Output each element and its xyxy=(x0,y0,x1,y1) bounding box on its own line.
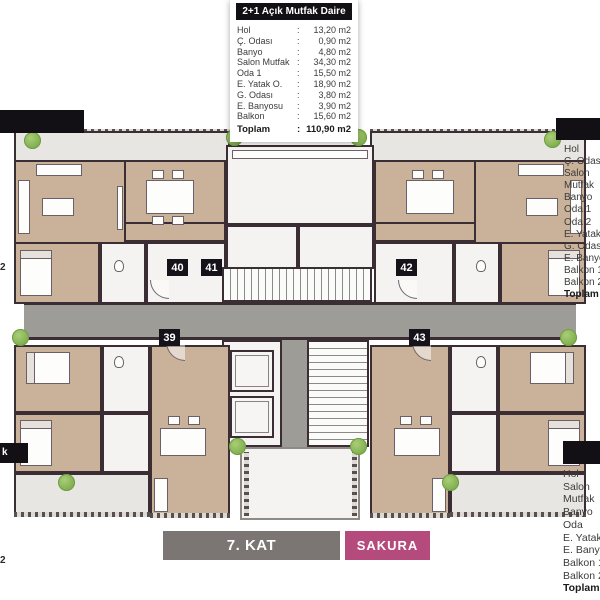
room xyxy=(298,225,374,269)
furniture xyxy=(526,198,558,216)
colon: : xyxy=(297,101,305,112)
legend-header-bar-clipped xyxy=(0,110,84,133)
tree-icon xyxy=(560,329,577,346)
room xyxy=(226,225,298,269)
legend-row: Balkon : 15,60 m2 xyxy=(230,111,358,122)
total-label: Toplam xyxy=(563,582,600,595)
room-label: E. Banyosu xyxy=(563,544,600,557)
legend-title: 2+1 Açık Mutfak Daire xyxy=(236,3,352,20)
colon: : xyxy=(297,36,305,47)
legend-row: G. Odası : 3,80 m2 xyxy=(230,90,358,101)
furniture xyxy=(476,356,486,368)
room xyxy=(450,345,498,413)
project-label: SAKURA xyxy=(345,531,430,560)
room-label: E. Banyosu xyxy=(564,253,600,265)
tree-icon xyxy=(442,474,459,491)
unit-legend-right-bottom: Hol Salon Mutfak Banyo Oda E. Yatak O. E… xyxy=(563,441,600,595)
furniture xyxy=(146,180,194,214)
tree-icon xyxy=(58,474,75,491)
room-label: Banyo xyxy=(563,506,600,519)
legend-total-row: Toplam : 110,90 m2 xyxy=(230,125,358,136)
room-area: 0,90 m2 xyxy=(305,36,351,47)
room-label: G. Odası xyxy=(564,241,600,253)
furniture xyxy=(114,260,124,272)
unit-badge-43: 43 xyxy=(409,329,430,346)
room-label: Mutfak xyxy=(563,493,600,506)
furniture xyxy=(420,416,432,425)
furniture xyxy=(412,170,424,179)
colon: : xyxy=(297,57,305,68)
furniture xyxy=(114,356,124,368)
furniture xyxy=(476,260,486,272)
room-area: 34,30 m2 xyxy=(305,57,351,68)
corridor xyxy=(282,340,307,447)
room-label: Mutfak xyxy=(564,180,600,192)
legend-row: Hol : 13,20 m2 xyxy=(230,25,358,36)
unit-legend-top: 2+1 Açık Mutfak Daire Hol : 13,20 m2 Ç. … xyxy=(230,0,358,142)
unit-badge-42: 42 xyxy=(396,259,417,276)
legend-row: Salon Mutfak : 34,30 m2 xyxy=(230,57,358,68)
colon: : xyxy=(297,79,305,90)
balcony-rail xyxy=(370,513,450,518)
colon: : xyxy=(297,25,305,36)
furniture xyxy=(160,428,206,456)
legend-header-bar xyxy=(563,441,600,464)
tree-icon xyxy=(229,438,246,455)
staircase xyxy=(307,340,369,447)
unit-badge-40: 40 xyxy=(167,259,188,276)
room-area: 3,80 m2 xyxy=(305,90,351,101)
furniture xyxy=(565,352,574,384)
total-label: Toplam xyxy=(564,289,600,301)
kitchen-counter xyxy=(232,150,368,159)
room-label: E. Banyosu xyxy=(237,101,283,112)
room-label: Salon xyxy=(564,168,600,180)
tree-icon xyxy=(12,329,29,346)
furniture xyxy=(518,164,564,176)
furniture xyxy=(188,416,200,425)
room-label: Balkon 2 xyxy=(564,277,600,289)
legend-row: E. Yatak O. : 18,90 m2 xyxy=(230,79,358,90)
room-label: Oda 1 xyxy=(237,68,262,79)
room-area: 15,60 m2 xyxy=(305,111,351,122)
room-area: 3,90 m2 xyxy=(305,101,351,112)
legend-row: Banyo : 4,80 m2 xyxy=(230,47,358,58)
room-label: Oda 1 xyxy=(564,204,600,216)
room-label: Hol xyxy=(237,25,251,36)
room-label: Balkon xyxy=(237,111,265,122)
room-label: E. Yatak O. xyxy=(563,532,600,545)
room-label: E. Yatak O. xyxy=(564,229,600,241)
furniture xyxy=(400,416,412,425)
room-label: Banyo xyxy=(237,47,263,58)
legend-row: Oda 1 : 15,50 m2 xyxy=(230,68,358,79)
room xyxy=(124,222,226,242)
colon: : xyxy=(297,125,305,136)
furniture xyxy=(172,216,184,225)
furniture xyxy=(36,164,82,176)
elevator xyxy=(230,350,274,392)
furniture xyxy=(406,180,454,214)
furniture xyxy=(394,428,440,456)
room-area: 18,90 m2 xyxy=(305,79,351,90)
balcony-rail xyxy=(150,513,230,518)
unit-legend-right-top: Hol Ç. Odası Salon Mutfak Banyo Oda 1 Od… xyxy=(564,118,600,301)
furniture xyxy=(154,478,168,512)
room-label: Oda 2 xyxy=(564,217,600,229)
unit-badge-41: 41 xyxy=(201,259,222,276)
legend-row: E. Banyosu : 3,90 m2 xyxy=(230,101,358,112)
colon: : xyxy=(297,68,305,79)
balcony-rail xyxy=(244,452,249,516)
room-label: Balkon 1 xyxy=(564,265,600,277)
room xyxy=(454,242,500,304)
floor-plan: 39 40 41 42 43 2+1 Açık Mutfak Daire Hol… xyxy=(0,0,600,600)
room-label: Ç. Odası xyxy=(237,36,273,47)
colon: : xyxy=(297,90,305,101)
room-label: Salon xyxy=(563,481,600,494)
room-label: E. Yatak O. xyxy=(237,79,282,90)
room-label: Ç. Odası xyxy=(564,156,600,168)
tree-icon xyxy=(24,132,41,149)
room-label: Oda xyxy=(563,519,600,532)
balcony-rail xyxy=(14,512,150,517)
colon: : xyxy=(297,47,305,58)
m2-text-fragment: 2 xyxy=(0,262,6,273)
furniture xyxy=(20,420,52,429)
furniture xyxy=(168,416,180,425)
furniture xyxy=(26,352,35,384)
balcony-rail xyxy=(352,452,357,516)
room-label: Balkon 1 xyxy=(563,557,600,570)
furniture xyxy=(172,170,184,179)
furniture xyxy=(20,250,52,259)
room-area: 13,20 m2 xyxy=(305,25,351,36)
room xyxy=(102,345,150,413)
furniture xyxy=(432,170,444,179)
furniture xyxy=(152,170,164,179)
floor-label: 7. KAT xyxy=(163,531,340,560)
staircase xyxy=(222,267,372,302)
colon: : xyxy=(297,111,305,122)
total-area: 110,90 m2 xyxy=(305,125,351,136)
room xyxy=(100,242,146,304)
furniture xyxy=(152,216,164,225)
room-area: 15,50 m2 xyxy=(305,68,351,79)
room-label: Balkon 2 xyxy=(563,570,600,583)
furniture xyxy=(117,186,123,230)
m2-text-fragment: 2 xyxy=(0,555,6,566)
room xyxy=(450,413,498,473)
furniture xyxy=(548,420,580,429)
legend-header-bar xyxy=(556,118,600,140)
legend-label-clipped: k xyxy=(0,443,28,463)
furniture xyxy=(42,198,74,216)
room xyxy=(102,413,150,473)
legend-row: Ç. Odası : 0,90 m2 xyxy=(230,36,358,47)
room xyxy=(374,222,476,242)
elevator xyxy=(230,396,274,438)
terrace xyxy=(14,131,230,162)
room-label: Salon Mutfak xyxy=(237,57,290,68)
total-label: Toplam xyxy=(237,125,270,136)
room-label: Hol xyxy=(563,468,600,481)
corridor xyxy=(24,302,576,340)
furniture xyxy=(18,180,30,234)
room-label: G. Odası xyxy=(237,90,273,101)
room-label: Hol xyxy=(564,144,600,156)
room-label: Banyo xyxy=(564,192,600,204)
unit-badge-39: 39 xyxy=(159,329,180,346)
room-area: 4,80 m2 xyxy=(305,47,351,58)
terrace xyxy=(14,473,150,515)
tree-icon xyxy=(350,438,367,455)
courtyard xyxy=(240,447,360,520)
